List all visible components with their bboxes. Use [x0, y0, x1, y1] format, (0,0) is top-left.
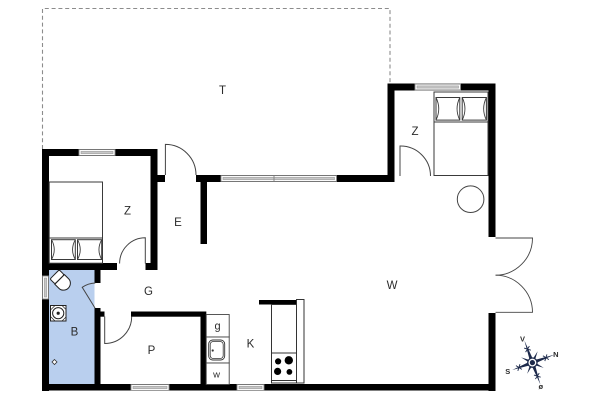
svg-text:S: S — [505, 367, 510, 376]
svg-text:T: T — [219, 85, 226, 97]
svg-text:V: V — [520, 335, 525, 344]
svg-text:W: W — [387, 280, 398, 292]
svg-text:g: g — [214, 321, 220, 333]
svg-text:Z: Z — [124, 206, 131, 218]
svg-text:P: P — [148, 345, 156, 357]
svg-text:K: K — [247, 339, 255, 351]
svg-text:ø: ø — [539, 382, 544, 391]
svg-text:E: E — [174, 217, 182, 229]
svg-text:G: G — [144, 286, 153, 298]
svg-text:Z: Z — [411, 126, 418, 138]
svg-text:B: B — [71, 327, 79, 339]
svg-text:w: w — [212, 370, 220, 381]
svg-text:N: N — [553, 350, 558, 359]
